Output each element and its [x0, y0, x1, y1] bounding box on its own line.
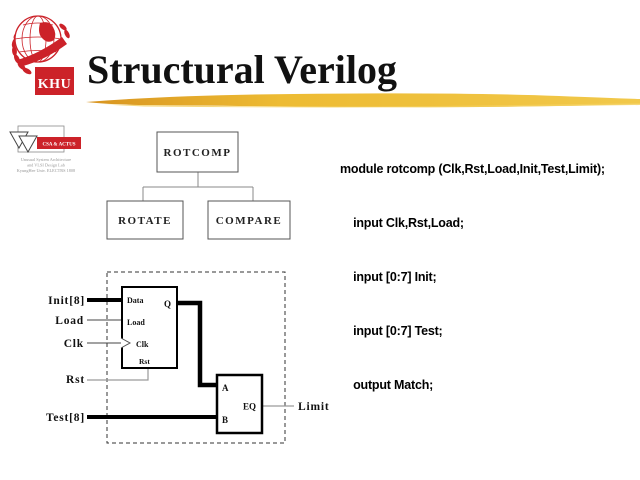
- lab-caption-line1: Unusual System Architecture: [21, 157, 71, 162]
- hierarchy-label-rotate: ROTATE: [118, 215, 172, 227]
- lab-caption-line3: KyungHee Univ. ELECTRS 1808: [17, 168, 75, 173]
- hierarchy-connectors: [143, 172, 253, 201]
- comparator-pin-a: A: [222, 383, 229, 393]
- comparator-pin-eq: EQ: [243, 402, 256, 412]
- inverter-triangles-icon: [10, 132, 37, 152]
- schematic-diagram: Data Load Clk Rst Q A B EQ Init[8] Load …: [40, 265, 340, 450]
- lab-logo-caption: Unusual System Architecture and VLSI Des…: [17, 157, 75, 173]
- lab-logo: CSA & ACTUS Unusual System Architecture …: [6, 124, 86, 178]
- page-title: Structural Verilog: [87, 50, 397, 90]
- register-pin-load: Load: [127, 318, 145, 327]
- code-line: [340, 430, 605, 448]
- code-line: input [0:7] Init;: [340, 268, 605, 286]
- register-pin-q: Q: [164, 299, 171, 309]
- title-underline-swoosh: [84, 90, 640, 110]
- register-pin-data: Data: [127, 296, 143, 305]
- port-label-init: Init[8]: [48, 295, 85, 307]
- module-hierarchy-diagram: ROTCOMP ROTATE COMPARE: [100, 125, 300, 245]
- port-label-clk: Clk: [64, 338, 84, 350]
- khu-badge-label: KHU: [38, 77, 71, 92]
- port-label-limit: Limit: [298, 401, 329, 413]
- slide: KHU Structural Verilog CSA & ACTUS Unusu…: [0, 0, 640, 480]
- port-label-load: Load: [55, 315, 84, 327]
- hierarchy-label-compare: COMPARE: [216, 215, 283, 227]
- port-label-rst: Rst: [66, 374, 85, 386]
- code-line: output Match;: [340, 376, 605, 394]
- lab-caption-line2: and VLSI Design Lab: [27, 163, 65, 168]
- hierarchy-label-rotcomp: ROTCOMP: [164, 147, 232, 159]
- khu-logo: KHU: [10, 9, 74, 95]
- port-label-test: Test[8]: [46, 412, 85, 424]
- code-line: input Clk,Rst,Load;: [340, 214, 605, 232]
- wire-q-to-a: [177, 303, 217, 385]
- code-line: input [0:7] Test;: [340, 322, 605, 340]
- wire-rst: [87, 368, 148, 380]
- verilog-code: module rotcomp (Clk,Rst,Load,Init,Test,L…: [340, 124, 605, 480]
- register-pin-clk: Clk: [136, 340, 149, 349]
- register-pin-rst: Rst: [139, 357, 150, 366]
- comparator-pin-b: B: [222, 415, 228, 425]
- lab-badge-label: CSA & ACTUS: [42, 143, 75, 148]
- code-line: module rotcomp (Clk,Rst,Load,Init,Test,L…: [340, 160, 605, 178]
